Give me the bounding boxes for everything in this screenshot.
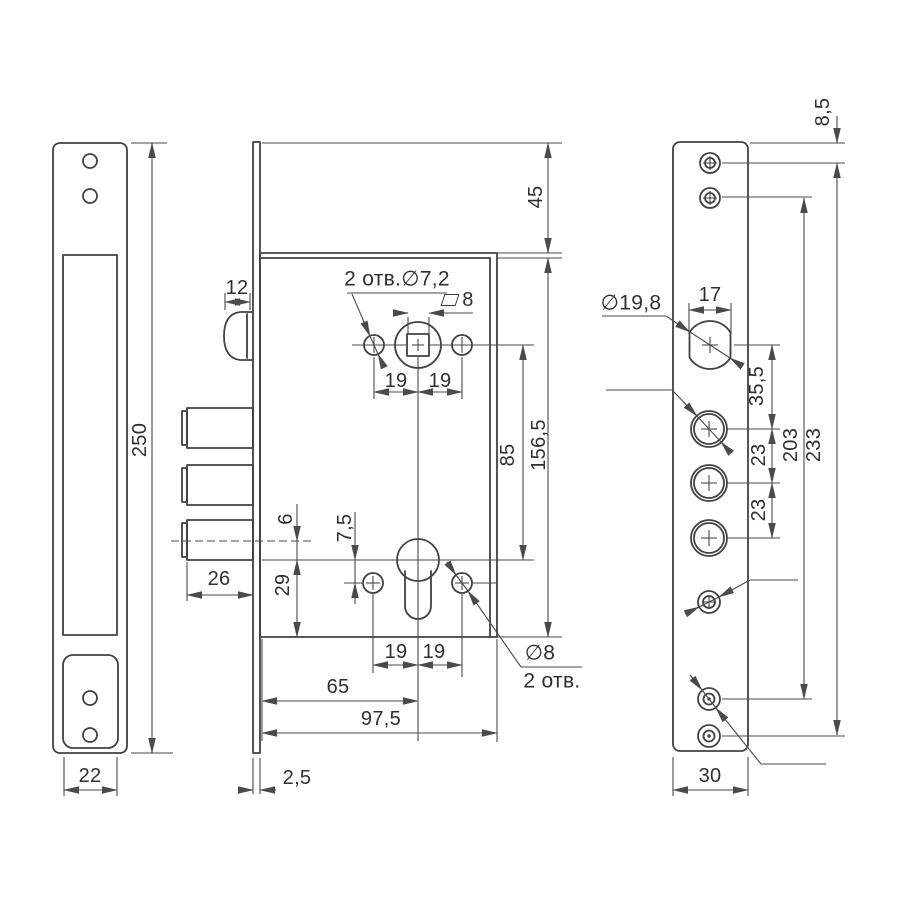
dim-screw-span-outer-label: 233: [804, 428, 824, 462]
dim-aux-hole-gap-label: 7,5: [335, 514, 355, 543]
dim-pitch-top-left-label: 19: [385, 371, 408, 391]
dim-pitch-bottom-right-label: 19: [423, 642, 446, 662]
dimension-lines: [64, 116, 837, 790]
dim-faceplate-height-label: 250: [130, 423, 150, 457]
dim-pitch-bottom-left-label: 19: [385, 642, 408, 662]
lock-technical-drawing: 250 22 12 2 отв.∅7,2 8 19 19 45 26 6 7,5…: [0, 0, 900, 900]
faceplate-front-view: [53, 143, 127, 753]
lock-body-view: [182, 142, 497, 753]
dim-bolt-throw-label: 26: [208, 569, 231, 589]
dim-faceplate-width-label: 22: [79, 766, 102, 786]
dim-pitch-top-right-label: 19: [429, 371, 452, 391]
dim-case-depth-label: 97,5: [361, 709, 401, 729]
dim-case-height-label: 156,5: [529, 419, 549, 471]
dim-axis-gap-label: 6: [276, 513, 296, 524]
dim-spindle-hole-width-label: 17: [699, 285, 722, 305]
side-plate-view: [673, 142, 748, 751]
dim-screw-span-inner-label: 203: [781, 428, 801, 462]
note-bottom-holes-diameter-label: ∅8: [525, 643, 556, 664]
note-bottom-holes-count-label: 2 отв.: [523, 671, 580, 692]
dim-bolt-pitch-b-label: 23: [749, 499, 769, 522]
dim-square-size-label: 8: [462, 290, 473, 310]
dim-cylinder-to-bottom-label: 29: [273, 574, 293, 597]
dim-spindle-to-bolt-label: 35,5: [747, 366, 767, 406]
dim-top-margin-label: 45: [526, 186, 546, 209]
dim-backset-label: 65: [327, 677, 350, 697]
dim-spindle-hole-diameter-label: ∅19,8: [601, 293, 662, 314]
dim-follower-to-cylinder-label: 85: [498, 444, 518, 467]
dim-latch-width-label: 12: [226, 278, 249, 298]
dim-bolt-pitch-a-label: 23: [749, 444, 769, 467]
note-top-holes-label: 2 отв.∅7,2: [344, 269, 450, 290]
dim-plate-width-label: 30: [699, 766, 722, 786]
dim-plate-top-offset-label: 8,5: [813, 98, 833, 127]
dim-forend-thickness-label: 2,5: [283, 768, 312, 788]
